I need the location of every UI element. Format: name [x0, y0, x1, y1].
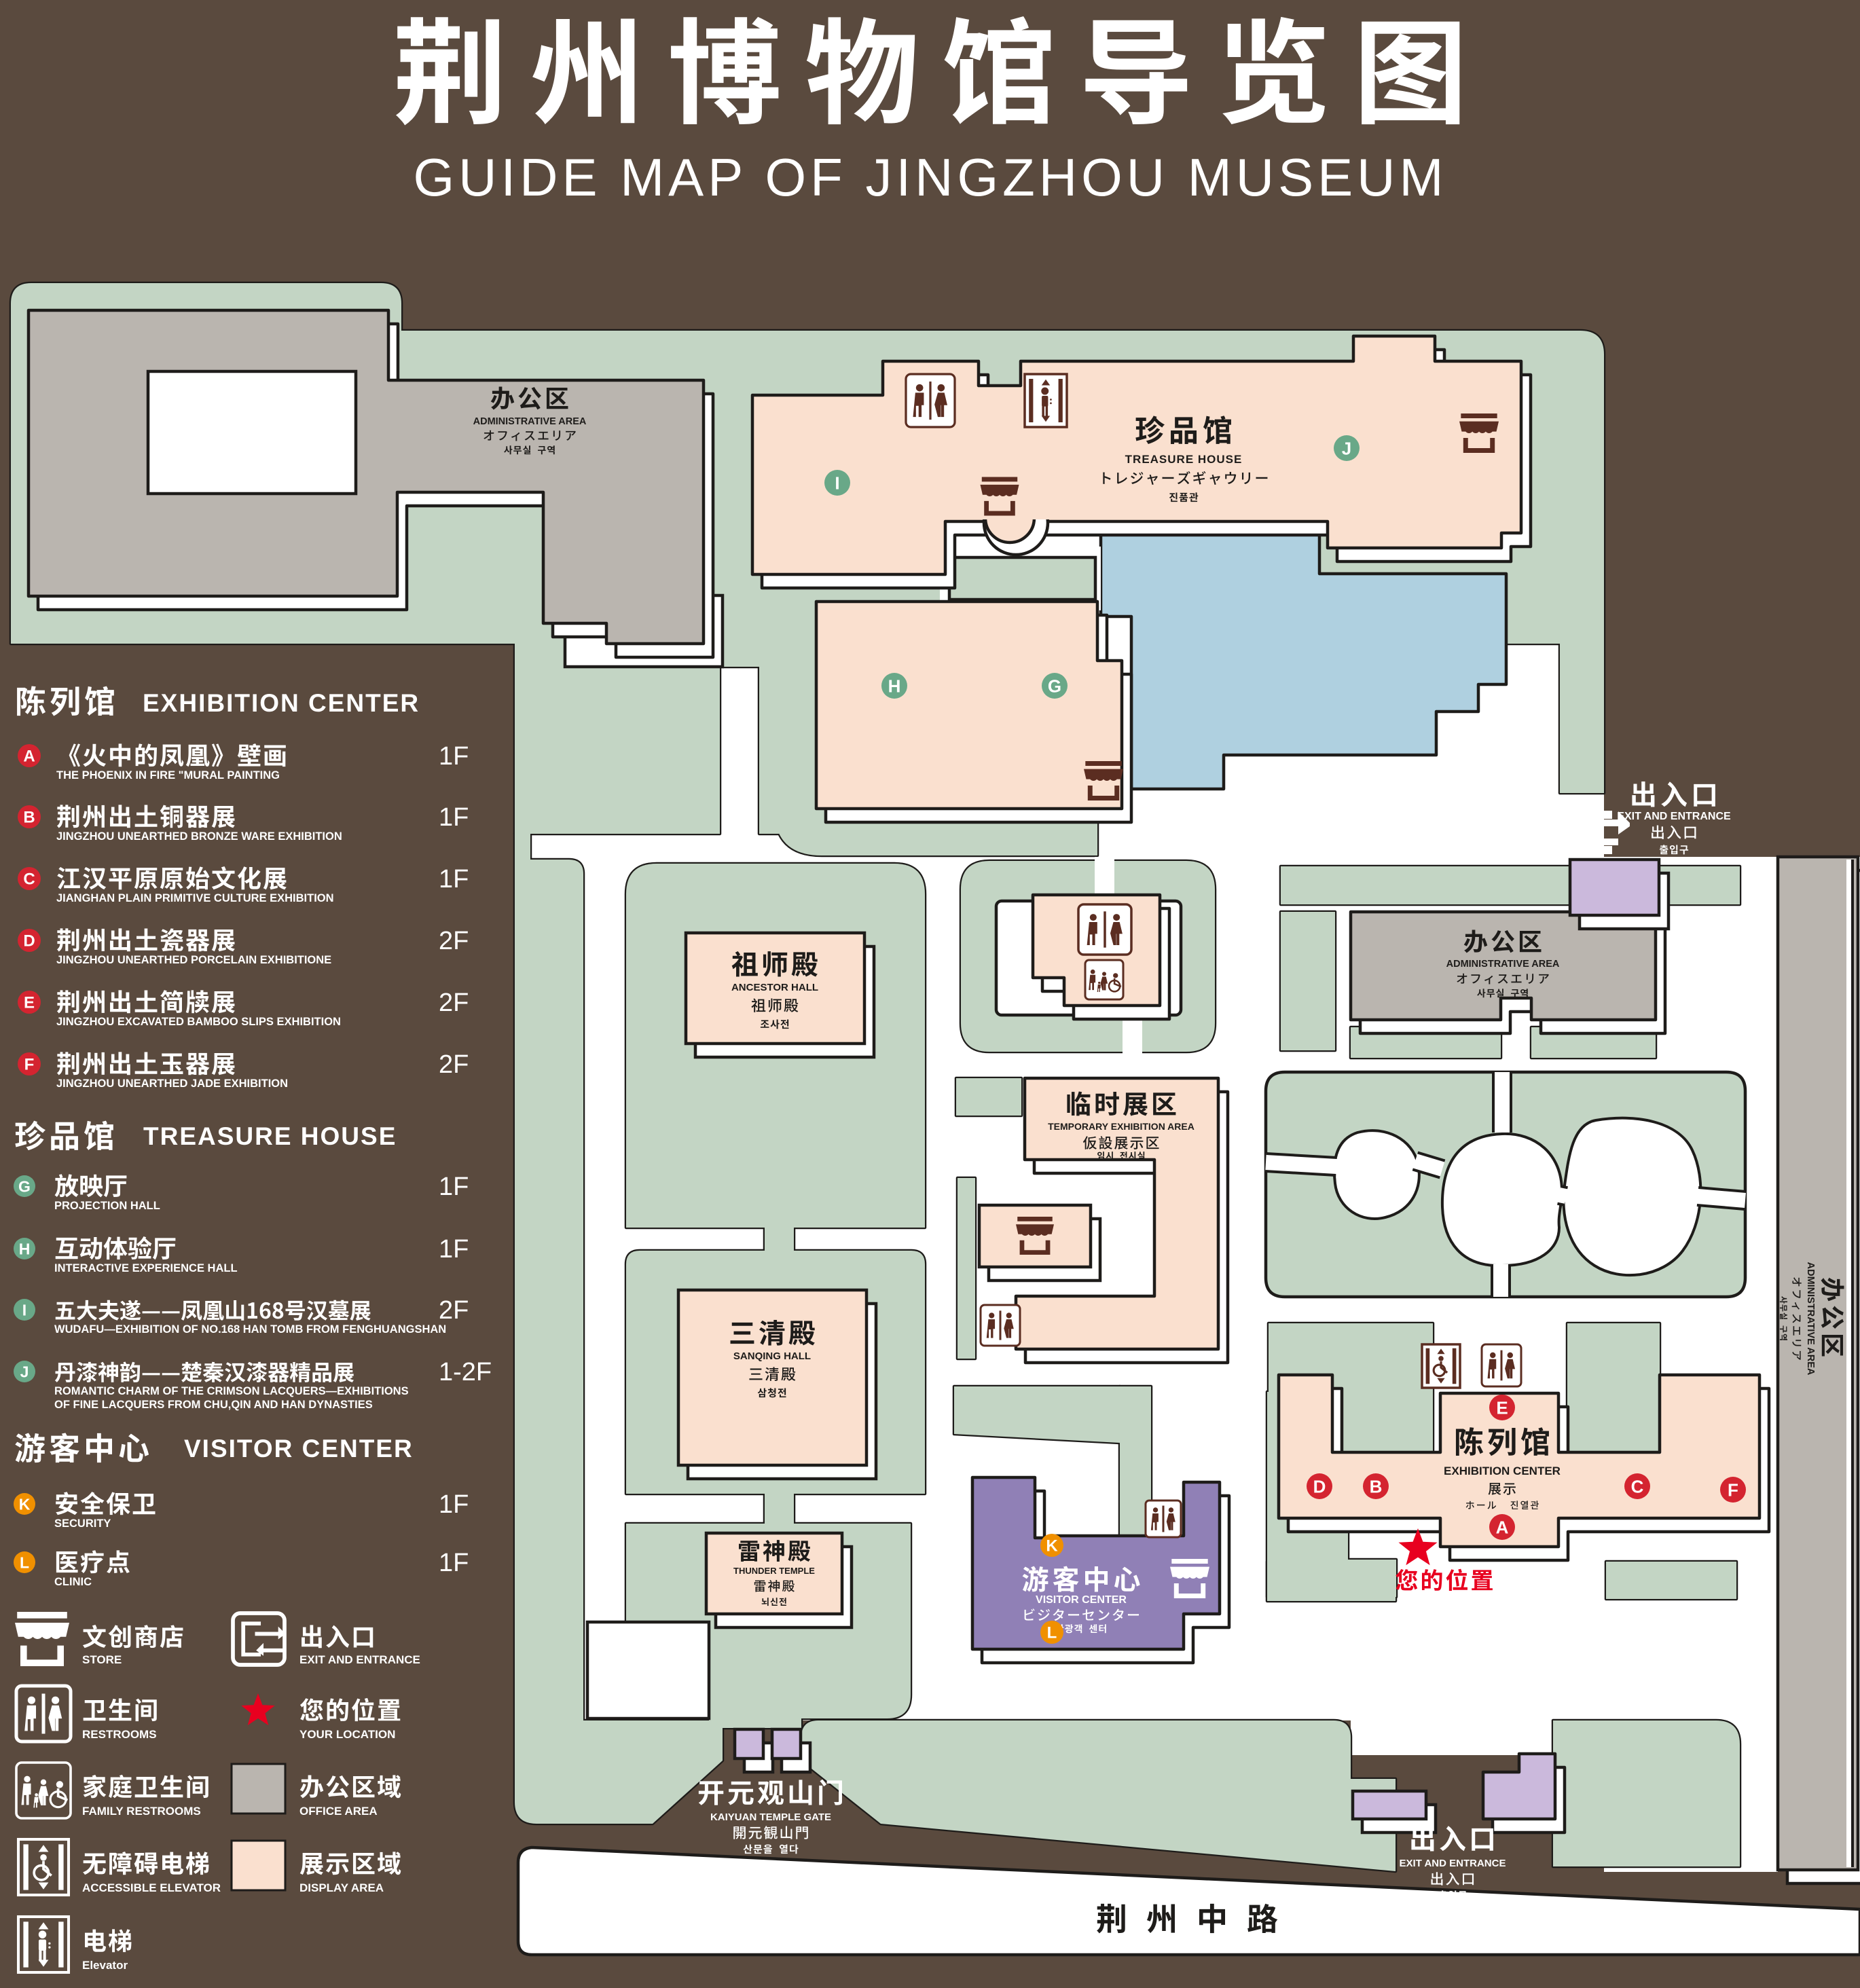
svg-text:PROJECTION HALL: PROJECTION HALL	[54, 1200, 160, 1212]
svg-text:SANQING HALL: SANQING HALL	[733, 1350, 811, 1362]
svg-text:ACCESSIBLE ELEVATOR: ACCESSIBLE ELEVATOR	[82, 1881, 221, 1894]
svg-text:FAMILY RESTROOMS: FAMILY RESTROOMS	[82, 1805, 201, 1818]
svg-text:2F: 2F	[439, 927, 469, 955]
svg-text:G: G	[18, 1177, 31, 1195]
svg-text:GUIDE MAP OF JINGZHOU MUSEUM: GUIDE MAP OF JINGZHOU MUSEUM	[414, 147, 1448, 207]
svg-text:TEMPORARY EXHIBITION AREA: TEMPORARY EXHIBITION AREA	[1048, 1121, 1195, 1132]
svg-text:JIANGHAN PLAIN PRIMITIVE CULTU: JIANGHAN PLAIN PRIMITIVE CULTURE EXHIBIT…	[56, 892, 334, 904]
svg-text:VISITOR CENTER: VISITOR CENTER	[184, 1435, 414, 1462]
svg-text:Elevator: Elevator	[82, 1959, 128, 1972]
svg-text:TREASURE HOUSE: TREASURE HOUSE	[1125, 453, 1243, 466]
svg-text:J: J	[1342, 438, 1351, 458]
svg-text:K: K	[1046, 1537, 1058, 1556]
svg-text:ADMINISTRATIVE AREA: ADMINISTRATIVE AREA	[1446, 959, 1560, 970]
svg-text:YOUR LOCATION: YOUR LOCATION	[299, 1728, 395, 1741]
svg-text:OF FINE LACQUERS FROM CHU,QIN: OF FINE LACQUERS FROM CHU,QIN AND HAN DY…	[54, 1399, 373, 1411]
svg-text:SECURITY: SECURITY	[54, 1517, 111, 1530]
svg-text:EXHIBITION CENTER: EXHIBITION CENTER	[143, 689, 420, 717]
svg-text:ADMINISTRATIVE AREA: ADMINISTRATIVE AREA	[1805, 1262, 1816, 1376]
svg-text:JINGZHOU UNEARTHED PORCELAIN E: JINGZHOU UNEARTHED PORCELAIN EXHIBITIONE	[56, 954, 331, 966]
svg-text:F: F	[1728, 1479, 1738, 1500]
svg-text:1F: 1F	[439, 1235, 469, 1264]
svg-text:1F: 1F	[439, 1549, 469, 1577]
svg-text:DISPLAY AREA: DISPLAY AREA	[299, 1881, 384, 1894]
svg-text:EXHIBITION CENTER: EXHIBITION CENTER	[1444, 1465, 1561, 1477]
svg-text:E: E	[1496, 1397, 1508, 1418]
svg-text:INTERACTIVE EXPERIENCE HALL: INTERACTIVE EXPERIENCE HALL	[54, 1262, 238, 1274]
svg-text:VISITOR CENTER: VISITOR CENTER	[1036, 1594, 1127, 1606]
svg-text:ADMINISTRATIVE AREA: ADMINISTRATIVE AREA	[473, 416, 587, 427]
svg-text:2F: 2F	[439, 989, 469, 1017]
svg-text:I: I	[835, 473, 839, 493]
svg-text:2F: 2F	[439, 1050, 469, 1079]
svg-text:K: K	[19, 1495, 31, 1513]
svg-text:I: I	[22, 1301, 26, 1319]
svg-text:1F: 1F	[439, 865, 469, 894]
svg-text:1F: 1F	[439, 803, 469, 832]
svg-text:1F: 1F	[439, 1173, 469, 1201]
svg-text:OFFICE AREA: OFFICE AREA	[299, 1805, 378, 1818]
svg-text:D: D	[23, 932, 35, 951]
svg-text:A: A	[23, 748, 35, 766]
svg-text:EXIT AND ENTRANCE: EXIT AND ENTRANCE	[299, 1653, 420, 1666]
svg-text:1F: 1F	[439, 1490, 469, 1519]
svg-text:WUDAFU—EXHIBITION OF NO.168 HA: WUDAFU—EXHIBITION OF NO.168 HAN TOMB FRO…	[54, 1323, 446, 1336]
svg-text:STORE: STORE	[82, 1653, 122, 1666]
svg-text:1F: 1F	[439, 742, 469, 771]
svg-text:E: E	[24, 994, 35, 1012]
svg-text:THUNDER TEMPLE: THUNDER TEMPLE	[733, 1566, 815, 1576]
svg-text:EXIT AND ENTRANCE: EXIT AND ENTRANCE	[1400, 1858, 1506, 1869]
svg-text:CLINIC: CLINIC	[54, 1576, 92, 1588]
svg-text:H: H	[888, 676, 901, 696]
svg-text:1-2F: 1-2F	[439, 1358, 492, 1386]
svg-text:G: G	[1048, 676, 1061, 696]
svg-text:L: L	[20, 1553, 29, 1571]
svg-text:JINGZHOU UNEARTHED JADE EXHIBI: JINGZHOU UNEARTHED JADE EXHIBITION	[56, 1078, 288, 1090]
svg-text:JINGZHOU EXCAVATED BAMBOO SLIP: JINGZHOU EXCAVATED BAMBOO SLIPS EXHIBITI…	[56, 1016, 341, 1028]
svg-text:B: B	[1370, 1476, 1383, 1496]
svg-text:A: A	[1496, 1517, 1509, 1537]
svg-text:J: J	[20, 1363, 29, 1380]
svg-text:THE PHOENIX IN FIRE "MURAL PAI: THE PHOENIX IN FIRE "MURAL PAINTING	[56, 769, 280, 781]
svg-text:KAIYUAN TEMPLE GATE: KAIYUAN TEMPLE GATE	[710, 1811, 831, 1823]
svg-text:ROMANTIC CHARM OF THE CRIMSON: ROMANTIC CHARM OF THE CRIMSON LACQUERS—E…	[54, 1385, 409, 1397]
svg-text:L: L	[1047, 1624, 1057, 1642]
svg-text:C: C	[23, 870, 35, 889]
svg-text:2F: 2F	[439, 1296, 469, 1325]
svg-text:H: H	[19, 1240, 31, 1257]
svg-text:B: B	[23, 809, 35, 827]
svg-text:TREASURE HOUSE: TREASURE HOUSE	[143, 1122, 397, 1150]
svg-text:JINGZHOU UNEARTHED BRONZE WARE: JINGZHOU UNEARTHED BRONZE WARE EXHIBITIO…	[56, 830, 342, 843]
svg-text:ANCESTOR HALL: ANCESTOR HALL	[731, 982, 818, 993]
svg-text:C: C	[1631, 1476, 1644, 1496]
svg-text:F: F	[24, 1056, 35, 1074]
svg-text:EXIT AND ENTRANCE: EXIT AND ENTRANCE	[1617, 811, 1731, 822]
svg-text:RESTROOMS: RESTROOMS	[82, 1728, 157, 1741]
svg-text:D: D	[1313, 1476, 1326, 1496]
